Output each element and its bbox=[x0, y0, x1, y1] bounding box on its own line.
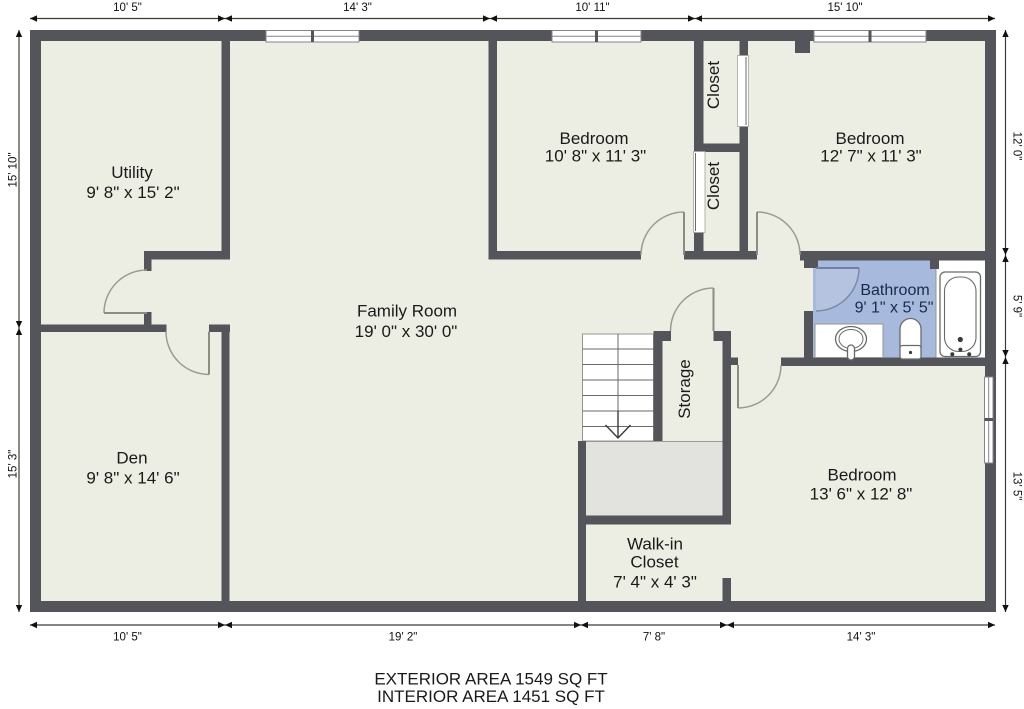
svg-text:10' 11": 10' 11" bbox=[575, 2, 609, 14]
svg-text:9' 1" x 5' 5": 9' 1" x 5' 5" bbox=[855, 300, 934, 317]
svg-text:Family Room: Family Room bbox=[357, 302, 457, 321]
svg-text:15' 10": 15' 10" bbox=[827, 2, 862, 14]
svg-text:10' 5": 10' 5" bbox=[113, 631, 142, 643]
svg-text:7' 4" x 4' 3": 7' 4" x 4' 3" bbox=[613, 573, 697, 592]
svg-text:Bedroom: Bedroom bbox=[836, 129, 905, 148]
svg-text:Walk-in: Walk-in bbox=[627, 535, 683, 554]
svg-text:9' 8" x 15' 2": 9' 8" x 15' 2" bbox=[86, 183, 179, 202]
svg-text:Bedroom: Bedroom bbox=[560, 129, 629, 148]
svg-text:19' 0" x 30' 0": 19' 0" x 30' 0" bbox=[355, 322, 458, 341]
svg-text:10' 5": 10' 5" bbox=[113, 2, 142, 14]
svg-text:10' 8" x 11' 3": 10' 8" x 11' 3" bbox=[545, 147, 646, 166]
svg-text:14' 3": 14' 3" bbox=[847, 631, 876, 643]
svg-text:INTERIOR AREA 1451 SQ FT: INTERIOR AREA 1451 SQ FT bbox=[377, 687, 605, 706]
svg-text:EXTERIOR AREA 1549 SQ FT: EXTERIOR AREA 1549 SQ FT bbox=[374, 670, 607, 689]
svg-text:13' 5": 13' 5" bbox=[1011, 472, 1023, 501]
svg-text:12' 7" x 11' 3": 12' 7" x 11' 3" bbox=[820, 147, 921, 166]
svg-text:Utility: Utility bbox=[111, 163, 153, 182]
svg-text:15' 3": 15' 3" bbox=[8, 450, 20, 479]
svg-text:Storage: Storage bbox=[675, 359, 694, 419]
svg-text:Closet: Closet bbox=[630, 553, 678, 572]
svg-text:Den: Den bbox=[116, 449, 147, 468]
svg-text:Closet: Closet bbox=[704, 61, 723, 109]
svg-text:5' 9": 5' 9" bbox=[1011, 295, 1023, 317]
svg-text:7' 8": 7' 8" bbox=[643, 631, 665, 643]
svg-text:14' 3": 14' 3" bbox=[343, 2, 372, 14]
svg-text:19' 2": 19' 2" bbox=[389, 631, 418, 643]
svg-text:Bedroom: Bedroom bbox=[828, 466, 897, 485]
svg-text:Closet: Closet bbox=[704, 162, 723, 210]
svg-text:9' 8" x 14' 6": 9' 8" x 14' 6" bbox=[86, 469, 179, 488]
svg-text:15' 10": 15' 10" bbox=[8, 152, 20, 187]
svg-text:Bathroom: Bathroom bbox=[860, 282, 929, 299]
svg-text:12' 0": 12' 0" bbox=[1011, 132, 1023, 161]
svg-text:13' 6" x 12' 8": 13' 6" x 12' 8" bbox=[810, 485, 913, 504]
